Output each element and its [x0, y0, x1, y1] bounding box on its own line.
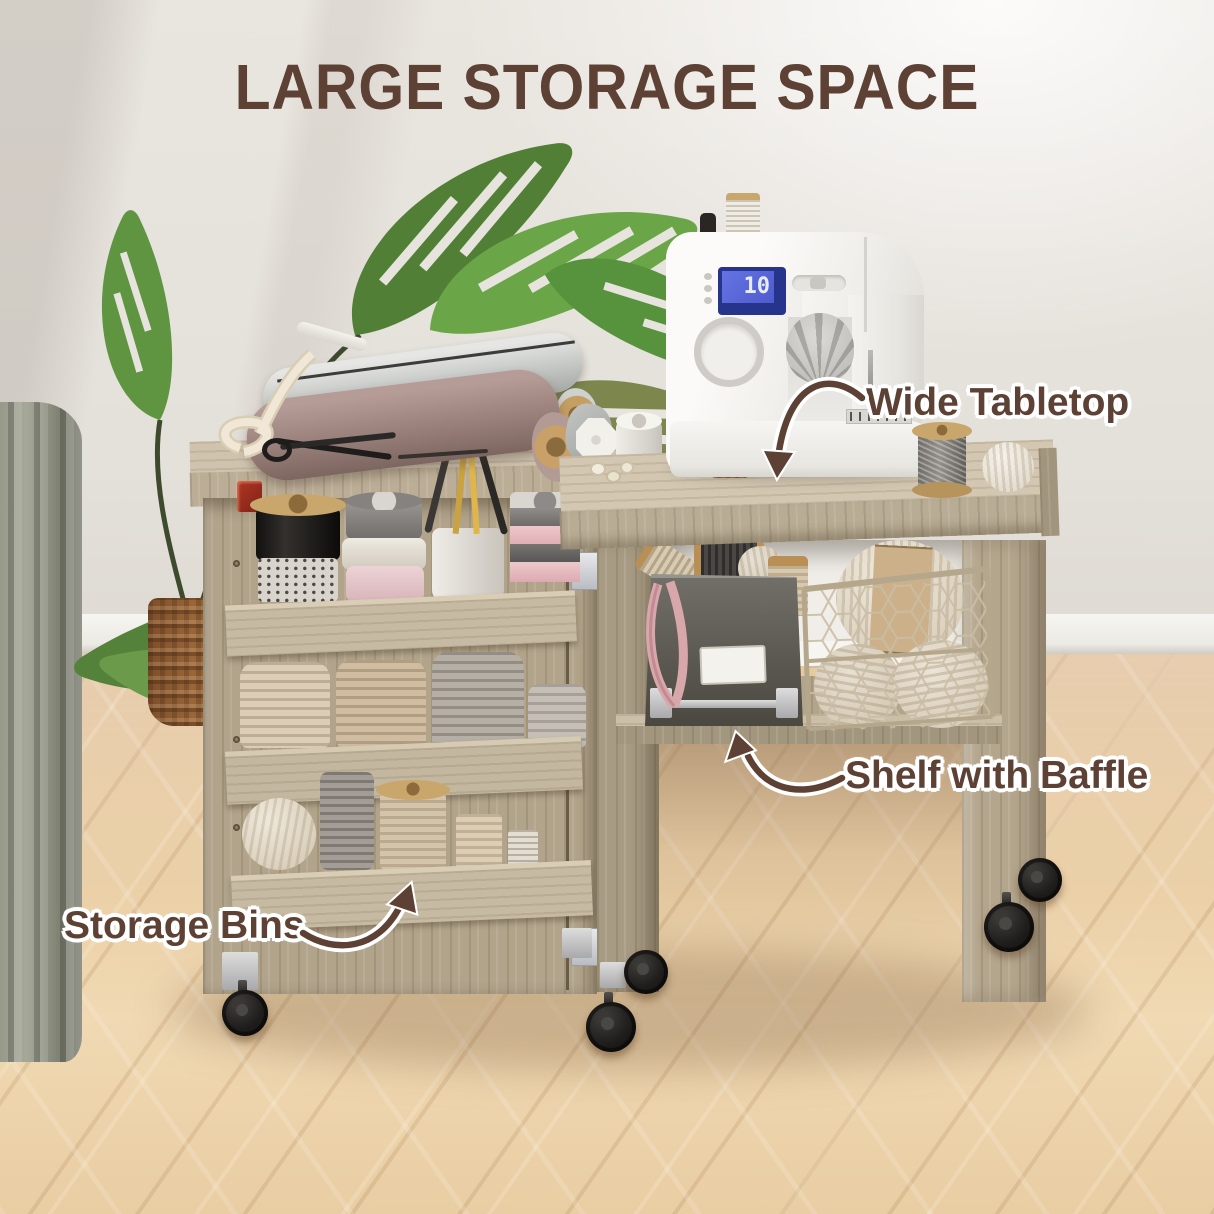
caster-wheel — [1018, 858, 1062, 902]
twine-spool-large — [380, 792, 446, 870]
bin-pink-ribbon — [640, 578, 720, 728]
lcd-display: 10 — [718, 267, 786, 315]
white-tape-roll-top — [616, 412, 662, 430]
machine-button — [704, 273, 712, 280]
twine-coil — [336, 660, 426, 748]
twine-ball-tabletop — [982, 442, 1034, 492]
corner-bracket — [562, 928, 592, 958]
tape-roll-gray-top — [346, 492, 422, 510]
corner-bracket — [600, 962, 626, 988]
machine-button — [704, 285, 712, 292]
spool-wood-flange — [250, 494, 346, 516]
sewing-machine: 10 — [660, 185, 955, 485]
callout-shelf-with-baffle: Shelf with Baffle — [845, 754, 1148, 798]
twine-coil — [240, 662, 330, 748]
buttons — [606, 470, 621, 483]
pin-cushion — [786, 313, 854, 383]
scissors-handle — [262, 438, 292, 462]
screw — [233, 736, 240, 743]
product-marketing-image: 10 LARGE STORAGE SPACE Wide Tabletop She… — [0, 0, 1214, 1214]
callout-storage-bins: Storage Bins — [64, 904, 305, 948]
lcd-screen: 10 — [722, 271, 774, 303]
wire-basket — [800, 560, 996, 732]
thread-spool-flange-bottom — [912, 482, 972, 498]
measuring-tape — [200, 330, 400, 480]
machine-seam-line — [864, 237, 867, 332]
buttons — [620, 461, 634, 474]
tabletop-end-cap — [1038, 448, 1059, 537]
speckled-spool — [258, 558, 338, 602]
bin-corner-bracket — [776, 688, 798, 718]
stitch-slider — [792, 275, 846, 291]
caster-wheel — [984, 902, 1034, 952]
twine-coil — [432, 652, 524, 748]
screw — [233, 824, 240, 831]
caster-wheel — [624, 950, 668, 994]
scissor-cup — [432, 528, 504, 602]
twine-spool-small — [456, 814, 502, 870]
selector-dial — [694, 317, 764, 387]
yarn-ball-cream — [242, 798, 316, 870]
machine-button — [704, 297, 712, 304]
callout-wide-tabletop: Wide Tabletop — [866, 381, 1129, 425]
machine-bed — [670, 421, 932, 477]
caster-wheel — [586, 1002, 636, 1052]
buttons — [590, 462, 606, 476]
gray-twine-spool — [320, 772, 374, 870]
twine-spool-wood-top — [376, 780, 450, 800]
screw — [233, 560, 240, 567]
caster-wheel — [222, 990, 268, 1036]
page-title: LARGE STORAGE SPACE — [49, 50, 1166, 124]
